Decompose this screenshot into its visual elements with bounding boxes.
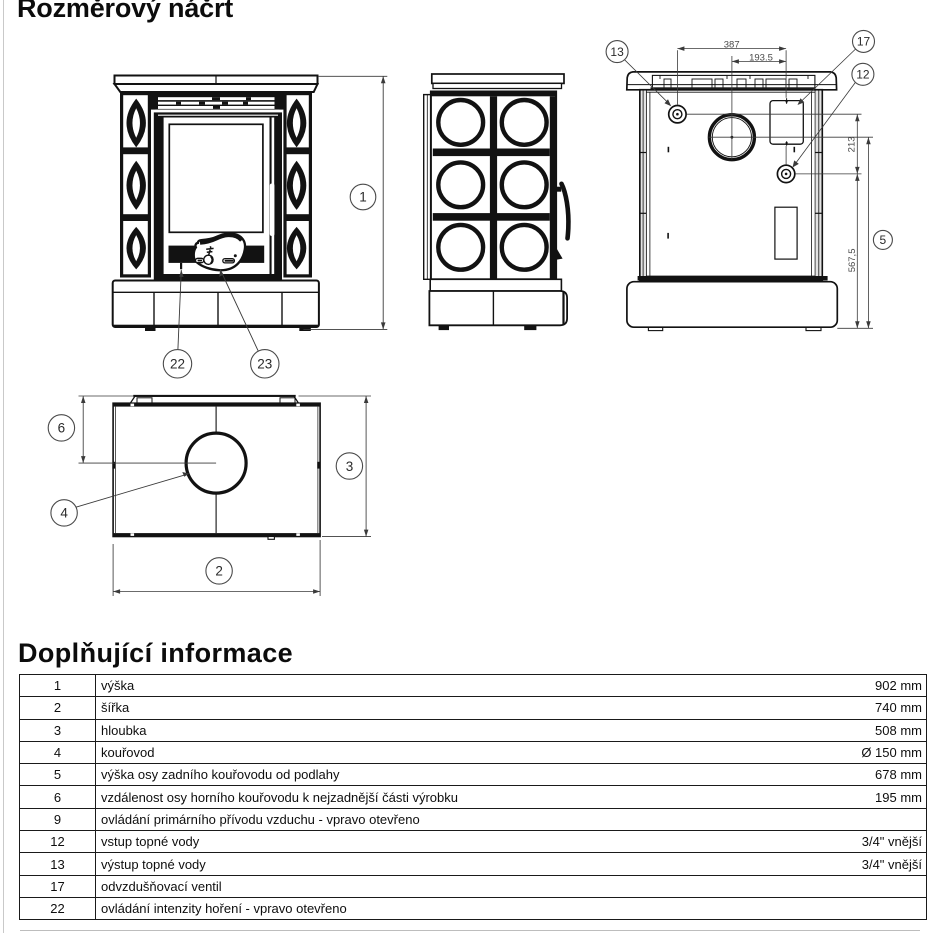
svg-text:12: 12: [856, 68, 870, 82]
svg-text:567,5: 567,5: [847, 249, 858, 273]
svg-text:3: 3: [346, 459, 354, 474]
svg-text:193.5: 193.5: [749, 52, 773, 63]
svg-text:2: 2: [215, 564, 223, 579]
svg-text:23: 23: [257, 357, 272, 372]
svg-text:213: 213: [847, 136, 858, 152]
svg-text:22: 22: [170, 357, 185, 372]
svg-text:387: 387: [724, 39, 740, 50]
svg-text:13: 13: [610, 45, 624, 59]
svg-text:4: 4: [60, 506, 68, 521]
svg-text:17: 17: [857, 35, 871, 49]
svg-text:1: 1: [359, 190, 367, 205]
svg-text:5: 5: [880, 233, 887, 247]
svg-text:6: 6: [58, 421, 66, 436]
